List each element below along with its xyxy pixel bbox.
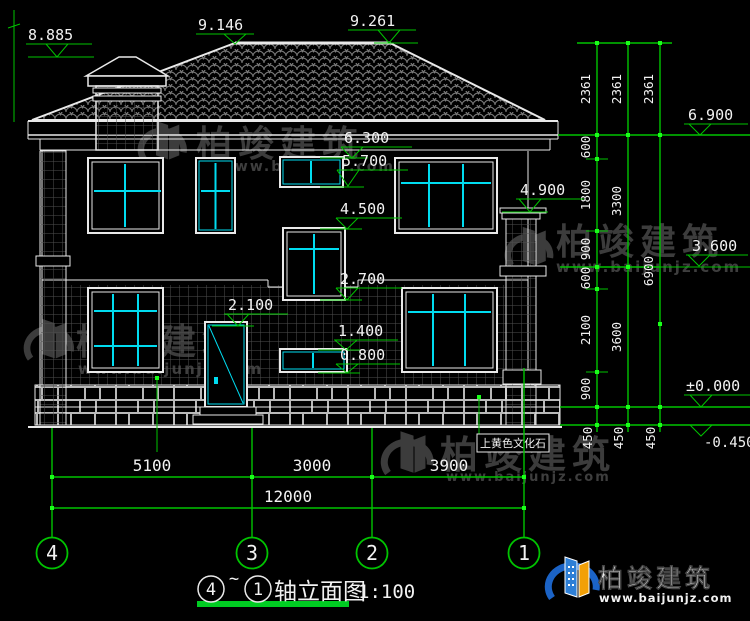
svg-text:4: 4 (206, 580, 216, 600)
dim-label: 12000 (264, 487, 312, 506)
window-2f-narrow (196, 158, 235, 233)
svg-text:0.800: 0.800 (340, 346, 385, 364)
left-pilaster (40, 151, 66, 425)
floor-slab-band (500, 266, 546, 276)
door-steps (193, 407, 263, 424)
dim-label: 450 (580, 427, 595, 450)
title-tilde: ~ (229, 569, 239, 589)
window-stair-lower (280, 349, 347, 372)
dim-label: 600 (578, 267, 593, 290)
entry-door (205, 322, 247, 407)
svg-text:1: 1 (518, 541, 530, 565)
dim-label: 1800 (578, 180, 593, 210)
window-stair-upper (280, 157, 343, 187)
svg-text:9.146: 9.146 (198, 16, 243, 34)
dim-label: 600 (578, 136, 593, 159)
window-2f-right (395, 158, 497, 233)
logo-building-icon (579, 561, 589, 597)
svg-text:6.900: 6.900 (688, 106, 733, 124)
svg-text:-0.450: -0.450 (704, 435, 750, 451)
svg-text:4: 4 (46, 541, 58, 565)
svg-text:±0.000: ±0.000 (686, 377, 740, 395)
dim-label: 450 (611, 427, 626, 450)
dim-label: 2361 (578, 74, 593, 104)
dim-label: 3900 (430, 456, 469, 475)
left-pilaster-cap (36, 256, 70, 266)
logo-building-icon (565, 557, 577, 597)
svg-text:1: 1 (253, 580, 263, 600)
svg-text:4.900: 4.900 (520, 181, 565, 199)
svg-text:3: 3 (246, 541, 258, 565)
dim-label: 5100 (133, 456, 172, 475)
porch-column-cap (502, 213, 540, 219)
dim-label: 2100 (578, 315, 593, 345)
svg-text:6.300: 6.300 (344, 129, 389, 147)
dim-label: 900 (578, 238, 593, 261)
svg-text:2.700: 2.700 (340, 270, 385, 288)
title-scale: 1:100 (358, 581, 415, 603)
svg-text:8.885: 8.885 (28, 26, 73, 44)
dim-label: 900 (578, 378, 593, 401)
porch-column-base-cap (503, 370, 541, 384)
chimney (86, 57, 168, 150)
title-text: 轴立面图 (274, 579, 366, 605)
dim-label: 3600 (609, 322, 624, 352)
svg-text:3.600: 3.600 (692, 237, 737, 255)
dim-label: 6900 (641, 256, 656, 286)
svg-text:2.100: 2.100 (228, 296, 273, 314)
svg-text:5.700: 5.700 (342, 152, 387, 170)
note-text: 上黄色文化石 (480, 436, 546, 450)
door-handle (214, 377, 218, 384)
svg-text:9.261: 9.261 (350, 12, 395, 30)
dim-label: 2361 (641, 74, 656, 104)
dim-label: 2361 (609, 74, 624, 104)
svg-text:2: 2 (366, 541, 378, 565)
window-stair-middle (283, 228, 345, 300)
logo-brand-text: 柏竣建筑 (598, 564, 714, 593)
dim-label: 450 (643, 427, 658, 450)
logo-url-text: www.baijunjz.com (599, 591, 732, 605)
porch-column-base (506, 384, 536, 425)
window-1f-right (402, 288, 497, 372)
elevation-drawing: 柏竣建筑 www.baijunjz.com 柏竣建筑 www.baijunjz.… (0, 0, 750, 621)
window-1f-left (88, 288, 163, 372)
dim-label: 3000 (293, 456, 332, 475)
window-2f-left (88, 158, 163, 233)
stone-plinth (35, 385, 560, 425)
svg-text:4.500: 4.500 (340, 200, 385, 218)
dim-label: 3300 (609, 186, 624, 216)
cad-viewport: 柏竣建筑 www.baijunjz.com 柏竣建筑 www.baijunjz.… (0, 0, 750, 621)
svg-text:1.400: 1.400 (338, 322, 383, 340)
